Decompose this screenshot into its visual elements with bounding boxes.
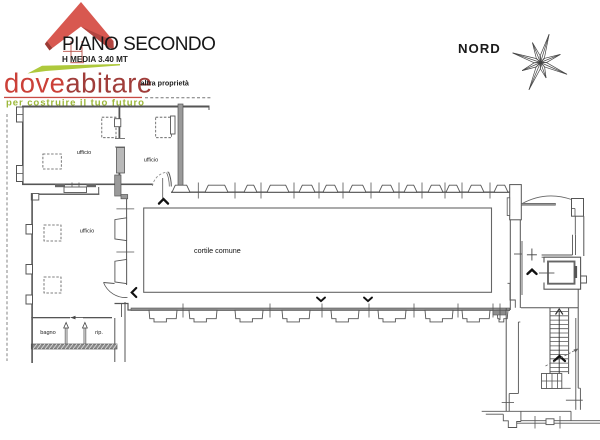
svg-text:NORD: NORD [458,41,501,56]
svg-text:doveabitare: doveabitare [4,68,153,99]
svg-text:bagno: bagno [40,330,56,336]
svg-text:altra proprietà: altra proprietà [141,78,190,87]
svg-text:H MEDIA 3.40 MT: H MEDIA 3.40 MT [62,55,128,64]
svg-text:rip.: rip. [95,330,103,336]
svg-text:PIANO SECONDO: PIANO SECONDO [62,34,215,55]
svg-text:ufficio: ufficio [144,158,159,164]
svg-text:ufficio: ufficio [80,229,95,235]
svg-text:cortile comune: cortile comune [194,246,241,255]
svg-text:ufficio: ufficio [77,150,92,156]
